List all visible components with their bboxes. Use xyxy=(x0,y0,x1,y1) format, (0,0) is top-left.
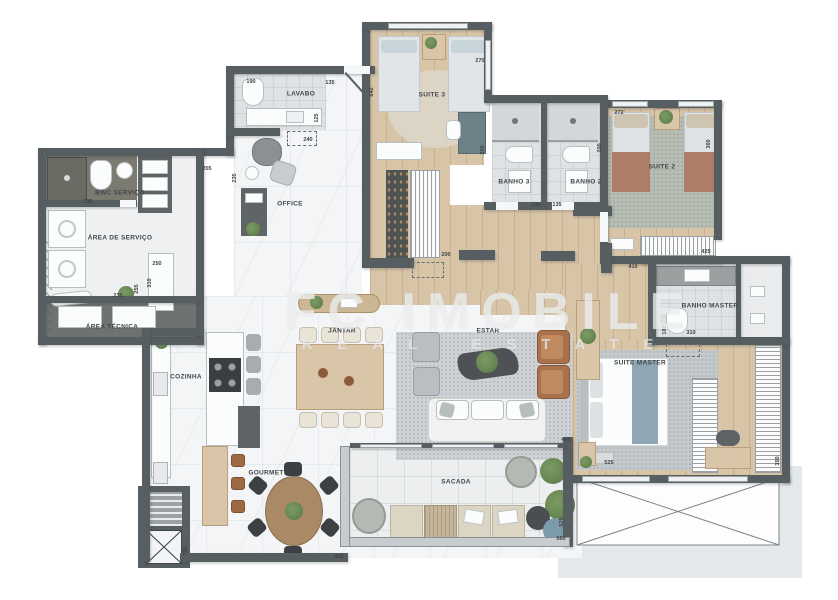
kitchen-trolley xyxy=(238,406,260,448)
room-label-banho2: BANHO 2 xyxy=(570,179,601,186)
banho-master-toilet xyxy=(666,308,688,334)
dimension-label: 790 xyxy=(183,546,189,555)
room-label-suite3: SUITE 3 xyxy=(419,92,446,99)
dining-chair-b2 xyxy=(321,412,339,428)
banho3-door-gap xyxy=(496,202,518,210)
dimension-label: 235 xyxy=(232,173,238,182)
wall-closet-south xyxy=(362,258,414,268)
banho-master-sink xyxy=(684,269,710,282)
wall-lavabo-left xyxy=(226,66,234,156)
suite2-window-1 xyxy=(612,101,648,107)
wall-corridor-stub-1 xyxy=(459,250,495,260)
wall-kitchen-link xyxy=(142,328,204,336)
sofa-cushion-2 xyxy=(471,400,504,420)
suite3-plant xyxy=(425,37,437,49)
dimension-label: 180 xyxy=(662,325,668,334)
dining-chair-b1 xyxy=(299,412,317,428)
lavabo-counter xyxy=(246,108,322,126)
office-shelf-item xyxy=(245,193,263,203)
outdoor-module-1 xyxy=(390,505,423,539)
master-pillow-2 xyxy=(590,402,603,438)
master-desk xyxy=(705,447,751,469)
dimension-label: 440 xyxy=(561,437,570,443)
wc-door-gap xyxy=(120,200,136,207)
dimension-label: 350 xyxy=(775,456,781,465)
dimension-label: 205 xyxy=(202,166,211,172)
dimension-label: 130 xyxy=(531,202,540,208)
dimension-label: 135 xyxy=(325,80,334,86)
suite3-bed-left-pillow xyxy=(381,40,417,53)
master-shower-2 xyxy=(750,313,765,324)
wall-bottom xyxy=(180,553,348,562)
master-window-1 xyxy=(582,476,650,482)
cooktop xyxy=(209,358,241,392)
kitchen-sink-2 xyxy=(153,462,168,484)
dimension-label: 200 xyxy=(480,145,486,154)
dimension-label: 270 xyxy=(475,58,484,64)
suite3-wine-rack xyxy=(386,170,408,258)
suite3-wardrobe xyxy=(410,170,440,258)
sliding-door-panel-2 xyxy=(432,444,494,448)
wall-suite2-east xyxy=(714,100,722,240)
lavabo-basin xyxy=(286,111,304,123)
entry-door-gap xyxy=(344,66,370,74)
sofa-pillow-2 xyxy=(519,402,536,419)
wall-service-left xyxy=(38,148,46,345)
room-label-gourmet: GOURMET xyxy=(248,470,283,477)
master-window-2 xyxy=(668,476,748,482)
kitchen-sink-1 xyxy=(153,372,168,396)
suite2-door-gap xyxy=(600,212,608,242)
wall-service-top xyxy=(38,148,204,156)
room-label-estar: ESTAR xyxy=(476,328,499,335)
wicker-chair-2 xyxy=(505,456,537,488)
room-label-bwc-servico: BWC SERVIÇO xyxy=(95,190,145,197)
dimension-label: 205 xyxy=(83,199,92,205)
suite3-desk-chair xyxy=(446,120,461,140)
dimension-label: 525 xyxy=(559,517,565,526)
parapet-left xyxy=(340,446,350,547)
dining-chair-b4 xyxy=(365,412,383,428)
wc-toilet xyxy=(90,160,112,190)
room-label-area-tecnica: ÁREA TÉCNICA xyxy=(86,324,138,331)
banho3-shower-head xyxy=(512,118,518,124)
kitchen-stool-2 xyxy=(246,356,261,373)
kitchen-stool-3 xyxy=(246,378,261,395)
wall-corridor-stub-2 xyxy=(541,251,575,261)
bar-stool-3 xyxy=(231,500,245,513)
suite3-window-north xyxy=(388,23,468,29)
master-desk-chair xyxy=(716,430,740,446)
dimension-label: 360 xyxy=(706,139,712,148)
dining-chair-t1 xyxy=(299,327,317,343)
wc-cabinet-shelf-2 xyxy=(142,177,168,191)
dimension-label: 250 xyxy=(152,261,161,267)
wc-sink xyxy=(116,162,133,179)
suite2-bed-left-blanket xyxy=(612,152,650,192)
room-label-lavabo: LAVABO xyxy=(287,91,315,98)
suite3-dresser xyxy=(376,142,422,160)
stairs xyxy=(146,492,182,526)
wc-cabinet-shelf-1 xyxy=(142,160,168,174)
open-terrace-x-area xyxy=(576,477,781,547)
dimension-label: 425 xyxy=(701,249,710,255)
room-label-suite-master: SUITE MASTER xyxy=(614,360,666,367)
suite2-bed-left-pillow xyxy=(614,114,648,128)
banho3-toilet xyxy=(505,146,533,163)
wall-banhos-partition xyxy=(541,100,547,204)
room-label-sacada: SACADA xyxy=(441,479,471,486)
floor-plan: LAVABOOFFICESUITE 3BANHO 3BANHO 2SUITE 2… xyxy=(0,0,838,600)
bar-stool-2 xyxy=(231,477,245,490)
gourmet-chair-1 xyxy=(284,462,302,476)
gourmet-table-plant xyxy=(285,502,303,520)
banho2-toilet xyxy=(562,146,590,163)
dimension-label: 125 xyxy=(314,113,320,122)
master-blue-throw xyxy=(632,360,658,444)
dining-bowl-1 xyxy=(318,368,328,378)
room-label-office: OFFICE xyxy=(277,201,303,208)
dining-chair-b3 xyxy=(343,412,361,428)
dining-table xyxy=(296,344,384,410)
washer-door xyxy=(58,220,76,238)
outdoor-pillow-2 xyxy=(497,509,519,526)
dryer-door xyxy=(58,260,76,278)
sideboard-tray xyxy=(340,298,358,308)
dining-chair-t4 xyxy=(365,327,383,343)
dimension-label: 410 xyxy=(628,264,637,270)
suite2-plant xyxy=(659,110,673,124)
room-label-cozinha: COZINHA xyxy=(170,374,202,381)
wc-shower-head xyxy=(64,175,70,181)
dimension-label: 255 xyxy=(134,284,140,293)
sliding-door-panel-3 xyxy=(504,444,558,448)
gourmet-bar-counter xyxy=(202,446,228,526)
wall-banho-master-top xyxy=(640,256,790,264)
wall-lavabo-south xyxy=(226,128,280,136)
outdoor-module-wicker xyxy=(424,505,457,539)
pouf-1 xyxy=(412,332,440,362)
wall-banho-master-west xyxy=(648,264,656,345)
banho2-shower-head xyxy=(570,118,576,124)
wall-service-right xyxy=(196,148,204,345)
master-plant xyxy=(580,456,592,468)
wall-service-bottom xyxy=(38,337,204,345)
master-closet-rack-2 xyxy=(755,345,781,473)
room-label-banho3: BANHO 3 xyxy=(498,179,529,186)
master-shower-1 xyxy=(750,286,765,297)
dimension-label: 240 xyxy=(303,137,312,143)
console-plant xyxy=(580,328,596,344)
armchair-1-seat xyxy=(541,335,563,359)
room-label-area-servico: ÁREA DE SERVIÇO xyxy=(88,235,152,242)
kitchen-counter-left xyxy=(151,338,171,478)
suite3-window-east xyxy=(485,40,491,90)
wc-cabinet-shelf-3 xyxy=(142,194,168,208)
suite3-closet-door-dashed xyxy=(412,262,444,278)
dimension-label: 310 xyxy=(147,278,153,287)
elevator-shaft xyxy=(146,530,182,564)
room-label-banho-master: BANHO MASTER xyxy=(682,303,739,310)
wall-east xyxy=(782,256,790,483)
pouf-2 xyxy=(413,367,440,396)
kitchen-stool-1 xyxy=(246,334,261,351)
suite2-bench xyxy=(610,238,634,250)
wicker-chair-1 xyxy=(352,498,386,534)
banho-master-door-dashed xyxy=(666,344,700,357)
wall-kitchen-left xyxy=(142,328,150,562)
dimension-label: 200 xyxy=(441,252,450,258)
office-side-table xyxy=(245,166,259,180)
suite2-window-2 xyxy=(678,101,714,107)
dining-bowl-2 xyxy=(344,376,354,386)
room-label-suite2: SUITE 2 xyxy=(649,164,676,171)
dimension-label: 642 xyxy=(369,87,375,96)
sideboard-plant xyxy=(310,296,323,309)
parapet-bottom xyxy=(340,537,570,547)
dimension-label: 135 xyxy=(552,202,561,208)
dimension-label: 190 xyxy=(246,79,255,85)
dimension-label: 200 xyxy=(597,143,603,152)
dimension-label: 560 xyxy=(556,536,565,542)
coffee-table-plant xyxy=(476,351,498,373)
banho-master-shower-floor xyxy=(738,264,782,337)
wall-hall-east xyxy=(362,22,370,266)
office-plant xyxy=(246,222,260,236)
dimension-label: 272 xyxy=(614,110,623,116)
room-label-jantar: JANTAR xyxy=(328,328,356,335)
dimension-label: 310 xyxy=(686,330,695,336)
suite3-bed-right-pillow xyxy=(451,40,487,53)
wall-suite2-entry-v xyxy=(601,243,612,273)
bar-stool-1 xyxy=(231,454,245,467)
dimension-label: 525 xyxy=(604,460,613,466)
sliding-door-panel-1 xyxy=(360,444,422,448)
wall-sacada-right xyxy=(563,437,573,547)
dimension-label: 420 xyxy=(334,554,343,560)
armchair-2-seat xyxy=(541,370,563,394)
dimension-label: 235 xyxy=(113,293,122,299)
wall-shower-partition xyxy=(736,264,741,337)
